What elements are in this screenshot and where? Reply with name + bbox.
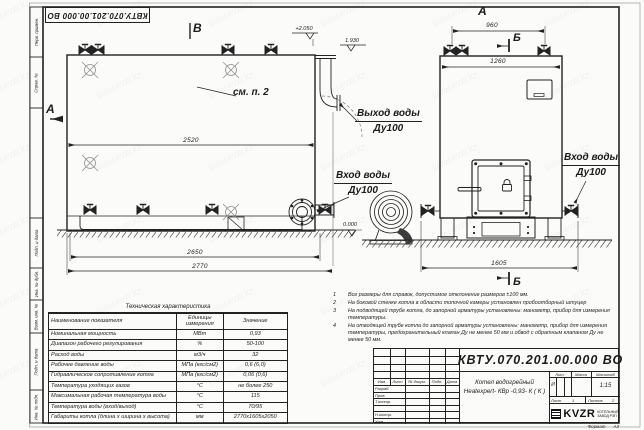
frame-cell-inv-dubl: Инв. № дубл. bbox=[31, 268, 43, 300]
tb-doc-number: КВТУ.070.201.00.000 ВО bbox=[459, 349, 621, 371]
fan-icon bbox=[370, 191, 413, 245]
lifting-point-icons bbox=[82, 62, 239, 220]
tb-role-razrab: Разраб. bbox=[375, 386, 389, 391]
note-2: 2На боковой стенке котла в области топоч… bbox=[333, 300, 617, 307]
kvzr-logo-icon bbox=[551, 409, 561, 419]
tb-role-nkontr: Н.контр. bbox=[375, 412, 392, 417]
dim-2770: 2770 bbox=[185, 263, 215, 270]
section-b-marks bbox=[497, 39, 509, 285]
table-row: Расход водым3/ч32 bbox=[48, 350, 288, 360]
table-row: Температура уходящих газов°Сне более 250 bbox=[48, 381, 288, 391]
tb-role-utv: Утв. bbox=[375, 419, 384, 424]
frame-cell-sprav-no: Справ. № bbox=[31, 57, 43, 108]
section-b-bottom-label: Б bbox=[513, 276, 521, 288]
front-view-valves bbox=[422, 46, 577, 216]
table-row: Максимальная рабочая температура воды°С1… bbox=[48, 391, 288, 401]
tb-lit-header: Лит. bbox=[549, 372, 571, 377]
tech-table-header: Наименование показателя Единицы измерени… bbox=[48, 312, 288, 329]
dim-2520: 2520 bbox=[176, 137, 206, 144]
note-4: 4На отводящей трубе котла до запорной ар… bbox=[333, 323, 617, 344]
frame-cell-inv-podl: Инв. № подл. bbox=[31, 390, 43, 423]
inlet-flange-icon bbox=[289, 199, 315, 225]
tb-scale-value: 1:15 bbox=[591, 383, 620, 389]
table-row: Рабочее давление водыМПа (кгс/см2)0,6 (6… bbox=[48, 360, 288, 370]
elevation-top: +2.050 bbox=[290, 26, 318, 32]
tb-scale-header: Масштаб bbox=[591, 372, 620, 377]
tb-mass-header: Масса bbox=[571, 372, 591, 377]
ground-front bbox=[362, 240, 612, 248]
section-b-top-label: Б bbox=[513, 32, 521, 44]
label-water-outlet: Выход воды Ду100 bbox=[355, 108, 422, 134]
label-water-inlet-right: Вход воды Ду100 bbox=[562, 152, 620, 178]
tb-role-tkontr: Т.контр. bbox=[375, 399, 391, 404]
tech-table-title: Техническая характеристика bbox=[48, 304, 288, 312]
table-row: Гидравлическое сопротивление котлаМПа (к… bbox=[48, 371, 288, 381]
frame-cell-vzam-inv: Взам. инв. № bbox=[31, 300, 43, 333]
note-1: 1Все размеры для справок, допустимое отк… bbox=[333, 292, 617, 299]
dim-2650: 2650 bbox=[180, 249, 210, 256]
kvzr-logo: KVZR КОТЕЛЬНЫЙ ЗАВОД РЭП bbox=[549, 403, 620, 424]
dim-960: 960 bbox=[478, 22, 506, 29]
tb-col-podp: Подп. bbox=[429, 379, 445, 384]
view-b-label: В bbox=[193, 21, 202, 35]
notes-list: 1Все размеры для справок, допустимое отк… bbox=[333, 292, 617, 345]
note-3: 3На подводящей трубе котла, до запорной … bbox=[333, 308, 617, 322]
tb-sheets-value: 2 bbox=[612, 398, 614, 403]
format-label: Формат А3 bbox=[543, 424, 619, 429]
kvzr-logo-word: KVZR bbox=[563, 408, 595, 420]
boiler-door-icon bbox=[458, 160, 531, 217]
table-row: Диапазон рабочего регулирования%50-100 bbox=[48, 339, 288, 349]
section-a-label: А bbox=[46, 102, 55, 116]
elevation-outlet: 1.930 bbox=[339, 38, 365, 44]
tb-col-izm: Изм. bbox=[374, 379, 390, 384]
tb-sheet-label: Лист bbox=[551, 398, 561, 403]
tb-sheets-label: Листов bbox=[588, 398, 603, 403]
tb-role-prov: Пров. bbox=[375, 393, 386, 398]
view-a-label: А bbox=[478, 4, 487, 18]
control-panel-icon bbox=[527, 80, 552, 99]
tb-product-name: Котел водогрейный Heatexpert- КВр -0,93-… bbox=[459, 371, 549, 424]
frame-cell-podp-data2: Подп. и дата bbox=[31, 333, 43, 390]
title-block: Изм. Лист № докум. Подп. Дата Разраб. Пр… bbox=[373, 348, 619, 423]
drawing-sheet: kotel-kvzr.kzkotel-kvzr.kzkotel-kvzr.kzk… bbox=[0, 0, 644, 430]
tb-lit-value: И bbox=[549, 382, 557, 388]
front-view bbox=[370, 56, 578, 245]
dim-1260: 1260 bbox=[484, 58, 512, 65]
kvzr-company-text: КОТЕЛЬНЫЙ ЗАВОД РЭП bbox=[597, 410, 618, 418]
dim-1605: 1605 bbox=[485, 260, 513, 267]
tech-table: Техническая характеристика Наименование … bbox=[48, 304, 288, 424]
frame-cell-podp-data1: Подп. и дата bbox=[31, 218, 43, 268]
table-row: Номинальная мощностьМВт0,93 bbox=[48, 329, 288, 339]
side-view-valves bbox=[79, 45, 331, 215]
tb-sheet-value: 1 bbox=[572, 398, 574, 403]
see-note-label: см. п. 2 bbox=[233, 87, 269, 98]
stamp-doc-number: КВТУ.070.201.00.000 ВО bbox=[45, 7, 150, 23]
side-view-dims bbox=[67, 145, 332, 275]
frame-cell-perv-primen: Перв. примен. bbox=[31, 7, 43, 57]
ground-side bbox=[57, 230, 355, 238]
tb-col-data: Дата bbox=[445, 379, 459, 384]
table-row: Температура воды (вход/выход)°С70/95 bbox=[48, 402, 288, 412]
label-water-inlet-left: Вход воды Ду100 bbox=[334, 170, 392, 196]
tb-col-dokum: № докум. bbox=[405, 379, 429, 384]
tb-col-list: Лист bbox=[390, 379, 405, 384]
table-row: Габариты котла (длина х ширина х высота)… bbox=[48, 412, 288, 423]
elevation-zero: 0.000 bbox=[337, 222, 363, 228]
